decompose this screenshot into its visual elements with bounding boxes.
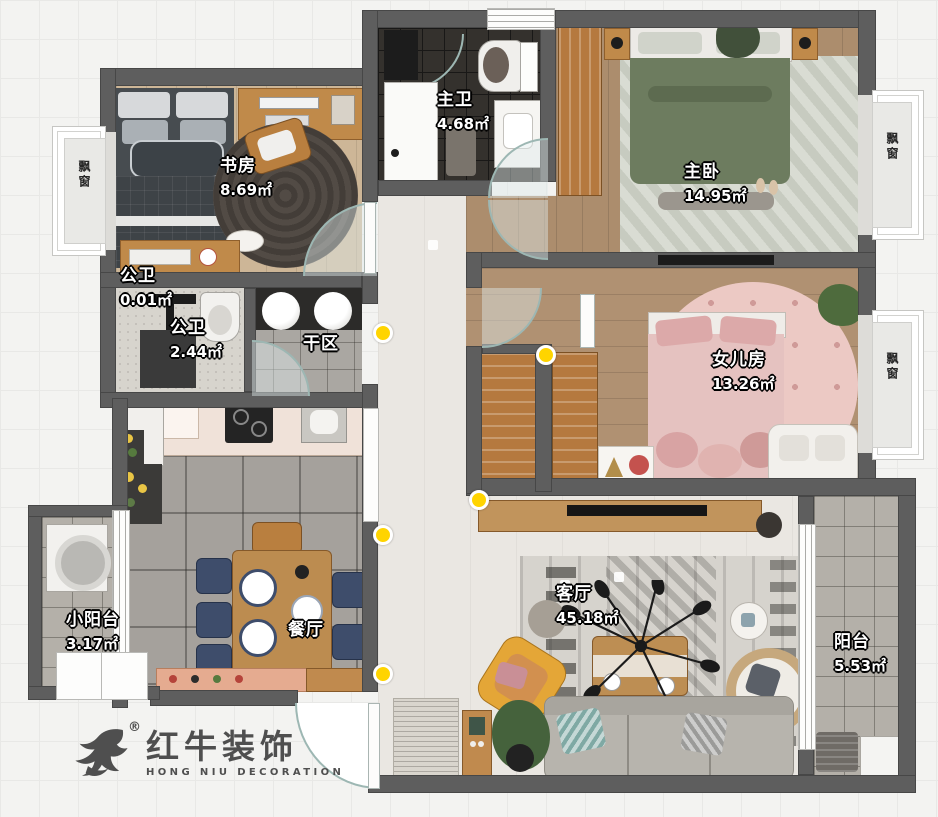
- wall-segment: [798, 496, 814, 526]
- plate: [239, 569, 277, 607]
- burner: [233, 409, 249, 425]
- nightstand: [792, 28, 818, 60]
- wall-segment: [362, 272, 378, 304]
- room-label-master-bedroom: 主卧 14.95㎡: [684, 160, 746, 208]
- sofa: [544, 696, 794, 780]
- brand-name-cn: 红牛装饰: [146, 730, 344, 764]
- room-label-small-balcony: 小阳台 3.17㎡: [66, 608, 120, 656]
- shoe-cabinet: [462, 710, 492, 782]
- room-label-living: 客厅 45.18㎡: [556, 582, 618, 630]
- dresser-items: [129, 249, 191, 265]
- sideboard: [156, 668, 308, 692]
- duvet-fold: [648, 86, 772, 102]
- bay-window-sill: [872, 322, 912, 448]
- wall-segment: [466, 252, 482, 288]
- room-label-balcony: 阳台 5.53㎡: [834, 630, 886, 678]
- cushion: [656, 432, 698, 468]
- wall-segment: [100, 68, 378, 86]
- pillow: [638, 32, 702, 54]
- bottle: [470, 741, 476, 747]
- dining-chair: [196, 602, 232, 638]
- door-divider: [101, 653, 102, 699]
- chair-pillow: [744, 662, 782, 700]
- wall-segment: [362, 10, 378, 202]
- marker-dot: [373, 323, 393, 343]
- red-vase: [629, 455, 649, 475]
- tv-console: [478, 500, 762, 532]
- cushion: [698, 444, 742, 478]
- door-small-balcony: [56, 652, 148, 700]
- closet-hall: [478, 352, 536, 494]
- basin: [262, 292, 300, 330]
- bay-window-label: 飘窗: [884, 352, 901, 382]
- room-label-guest-bath: 公卫 2.44㎡: [170, 316, 222, 364]
- wall-segment: [150, 690, 298, 706]
- doormat: [393, 698, 459, 778]
- shower-tray: [384, 82, 438, 182]
- books: [331, 95, 355, 125]
- jar: [213, 675, 221, 683]
- plate: [239, 619, 277, 657]
- toilet-master: [478, 40, 522, 92]
- toilet-tank: [520, 42, 538, 92]
- window-top: [487, 8, 555, 30]
- ceiling-light: [614, 572, 624, 582]
- door-leaf-study: [364, 202, 376, 274]
- tv: [567, 505, 707, 516]
- marker-dot: [373, 664, 393, 684]
- slipper: [769, 180, 778, 195]
- registered-mark: ®: [128, 720, 141, 735]
- cushion: [130, 140, 224, 178]
- room-label-dry-area: 干区: [303, 332, 339, 356]
- bed-daughter: [648, 312, 784, 482]
- wall-segment: [368, 10, 876, 28]
- wall-segment: [466, 478, 916, 496]
- burner: [251, 421, 267, 437]
- table-item: [741, 613, 755, 627]
- plant-pot: [506, 744, 534, 772]
- pillow: [118, 92, 170, 118]
- lamp: [611, 37, 623, 49]
- throw-pillow: [555, 707, 606, 755]
- door-leaf-entry: [368, 703, 380, 789]
- room-label-guest-bath-small: 公卫 0.01㎡: [120, 264, 172, 312]
- plant-living: [492, 700, 550, 770]
- wall-segment: [466, 346, 482, 494]
- bay-window-label: 飘窗: [884, 132, 901, 162]
- wall-segment: [28, 505, 42, 700]
- leaf: [128, 448, 137, 457]
- wardrobe-master: [558, 26, 602, 196]
- washing-machine: [46, 524, 108, 592]
- sliding-door-kitchen: [363, 408, 379, 522]
- room-label-master-bath: 主卫 4.68㎡: [437, 88, 489, 136]
- throw-pillow: [680, 712, 728, 757]
- jar: [169, 675, 177, 683]
- closet-daughter: [552, 352, 598, 490]
- dresser-plate: [199, 248, 217, 266]
- cabinet-item: [469, 717, 485, 735]
- jar: [235, 675, 243, 683]
- speaker-pot: [756, 512, 782, 538]
- jar: [191, 675, 199, 683]
- slipper: [756, 178, 765, 193]
- sideboard-wood: [306, 668, 366, 692]
- room-label-study: 书房 8.69㎡: [220, 154, 272, 202]
- balcony-mat: [816, 732, 858, 772]
- wall-segment: [368, 775, 916, 793]
- basin: [314, 292, 352, 330]
- bull-icon: [70, 724, 136, 784]
- drain: [391, 149, 399, 157]
- marker-dot: [469, 490, 489, 510]
- bay-window-sill: [64, 138, 106, 244]
- sofa-cushion: [815, 435, 845, 461]
- pot: [295, 565, 309, 579]
- room-label-dining: 餐厅: [288, 618, 324, 642]
- washer-drum: [55, 535, 111, 591]
- cushion-divider: [627, 715, 629, 777]
- kitchen-sink: [301, 403, 347, 443]
- dining-table: [232, 550, 332, 676]
- deer-ornament: [605, 457, 623, 477]
- lamp: [799, 37, 811, 49]
- tv-master: [658, 255, 774, 265]
- toilet-lid: [483, 47, 509, 83]
- floor-hallway: [378, 196, 466, 502]
- wall-segment: [100, 392, 378, 408]
- bay-window-sill: [872, 102, 912, 228]
- pillow: [176, 92, 228, 118]
- brand-logo: ® 红牛装饰 HONG NIU DECORATION: [70, 724, 344, 784]
- wall-segment: [535, 352, 552, 492]
- marker-dot: [373, 525, 393, 545]
- room-label-daughter-room: 女儿房 13.26㎡: [712, 348, 774, 396]
- marker-dot: [536, 345, 556, 365]
- monitor: [259, 97, 319, 109]
- dining-chair: [196, 558, 232, 594]
- sofa-cushion: [779, 435, 809, 461]
- window-balcony: [798, 524, 816, 750]
- wall-segment: [898, 478, 916, 793]
- logo-bull-icon: ®: [70, 724, 136, 784]
- sink-bowl: [310, 410, 338, 434]
- ceiling-light: [428, 240, 438, 250]
- pillow: [719, 316, 777, 347]
- side-table-round: [730, 602, 768, 640]
- bay-window-label: 飘窗: [76, 160, 93, 190]
- nightstand: [604, 28, 630, 60]
- bottle: [478, 741, 484, 747]
- brand-name-en: HONG NIU DECORATION: [146, 767, 344, 778]
- wall-segment: [378, 180, 492, 196]
- balcony-cabinet: [860, 736, 900, 778]
- flower: [138, 484, 147, 493]
- door-leaf-open: [580, 294, 595, 348]
- wall-segment: [112, 398, 128, 510]
- floor-plan: 书房 8.69㎡ 主卫 4.68㎡ 主卧 14.95㎡ 公卫 0.01㎡ 公卫 …: [0, 0, 938, 817]
